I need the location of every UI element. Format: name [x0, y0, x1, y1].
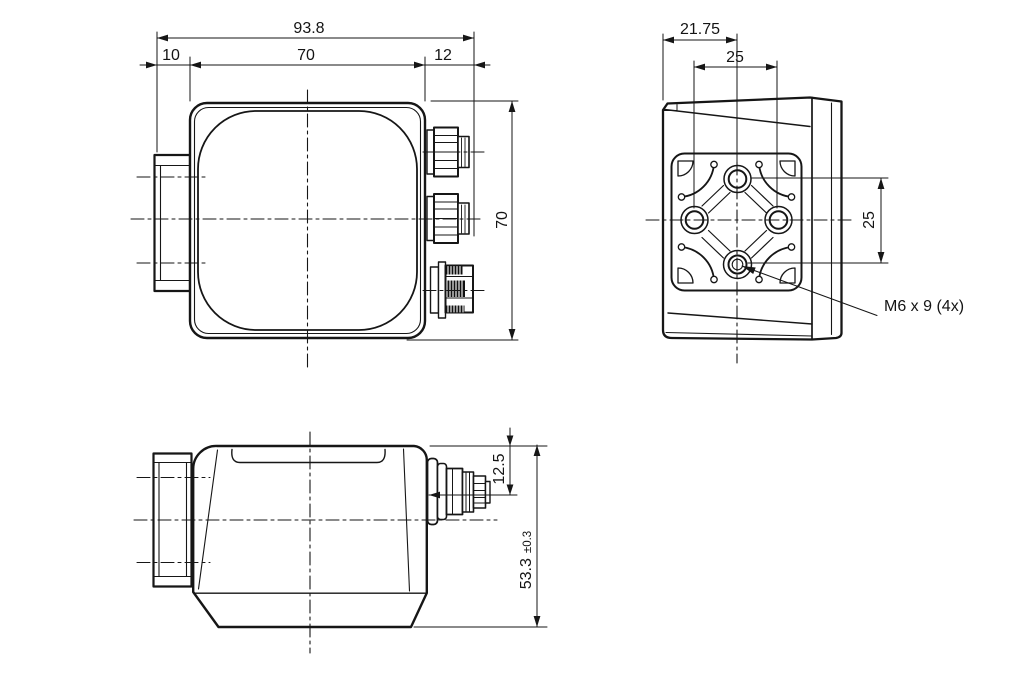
side-view: 21.75 25 25 M6 x 9 (4x)	[646, 21, 964, 363]
front-mount-block	[155, 155, 191, 291]
technical-drawing: 93.8 10 70 12 70	[0, 0, 1024, 676]
mounting-holes-label: M6 x 9 (4x)	[884, 298, 964, 315]
dim-body-width: 70	[297, 47, 315, 64]
dim-hole-spacing-horizontal: 25	[726, 49, 744, 66]
bottom-view: 12.5 53.3±0.3	[134, 428, 547, 653]
dimension-drawing-page: 93.8 10 70 12 70	[0, 0, 1024, 676]
dim-hole-spacing-vertical: 25	[861, 211, 878, 229]
dim-overall-width: 93.8	[293, 20, 324, 37]
dim-body-height: 70	[494, 211, 511, 229]
bottom-connector	[428, 459, 491, 525]
dim-connector-axis-offset: 12.5	[491, 453, 508, 484]
dim-connector-clearance: 12	[434, 47, 452, 64]
dim-mount-block-depth: 10	[162, 47, 180, 64]
dim-overall-depth: 53.3±0.3	[518, 531, 535, 589]
front-view: 93.8 10 70 12 70	[131, 20, 518, 371]
dim-edge-to-hole: 21.75	[680, 21, 720, 38]
